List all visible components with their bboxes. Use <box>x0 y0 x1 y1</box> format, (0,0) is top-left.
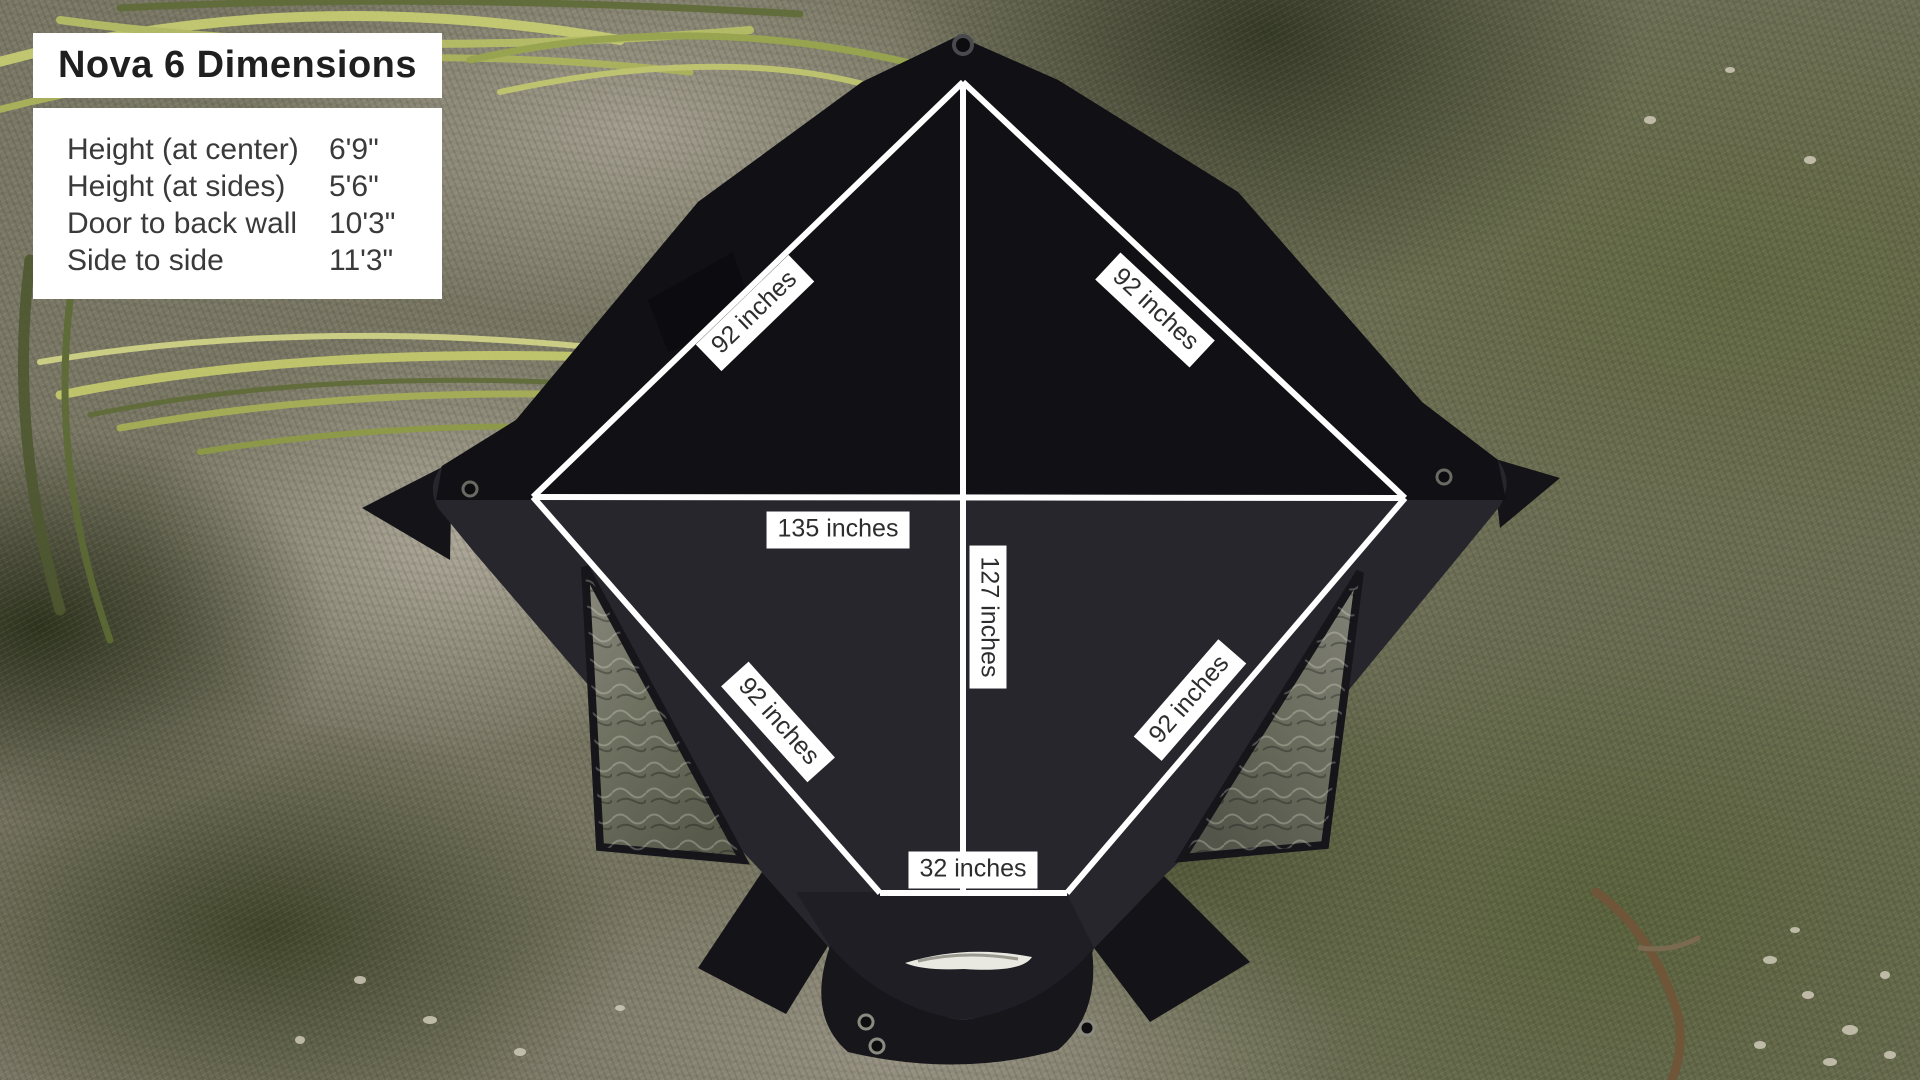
panel-title-box: Nova 6 Dimensions <box>33 33 442 98</box>
dimension-label: Height (at sides) <box>67 170 329 204</box>
dimension-value: 6'9" <box>329 133 379 167</box>
label-door-width: 32 inches <box>908 852 1037 889</box>
dimension-row: Height (at center) 6'9" <box>67 131 442 168</box>
dimension-row: Door to back wall 10'3" <box>67 205 442 242</box>
panel-table: Height (at center) 6'9" Height (at sides… <box>33 108 442 299</box>
scene: 92 inches 92 inches 135 inches 127 inche… <box>0 0 1920 1080</box>
dimension-label: Door to back wall <box>67 207 329 241</box>
label-side-to-side: 135 inches <box>767 512 910 549</box>
dimension-label: Side to side <box>67 244 329 278</box>
dimension-row: Side to side 11'3" <box>67 242 442 279</box>
label-door-to-back: 127 inches <box>970 546 1007 689</box>
dimension-label: Height (at center) <box>67 133 329 167</box>
dimension-row: Height (at sides) 5'6" <box>67 168 442 205</box>
panel-title: Nova 6 Dimensions <box>58 44 417 87</box>
dimension-value: 11'3" <box>329 244 393 278</box>
dimensions-panel: Nova 6 Dimensions Height (at center) 6'9… <box>33 33 442 299</box>
line-side-to-side <box>533 497 1405 498</box>
twig <box>1596 892 1698 1080</box>
dimension-value: 5'6" <box>329 170 379 204</box>
dimension-value: 10'3" <box>329 207 395 241</box>
tent-roof-upper <box>436 36 1506 500</box>
